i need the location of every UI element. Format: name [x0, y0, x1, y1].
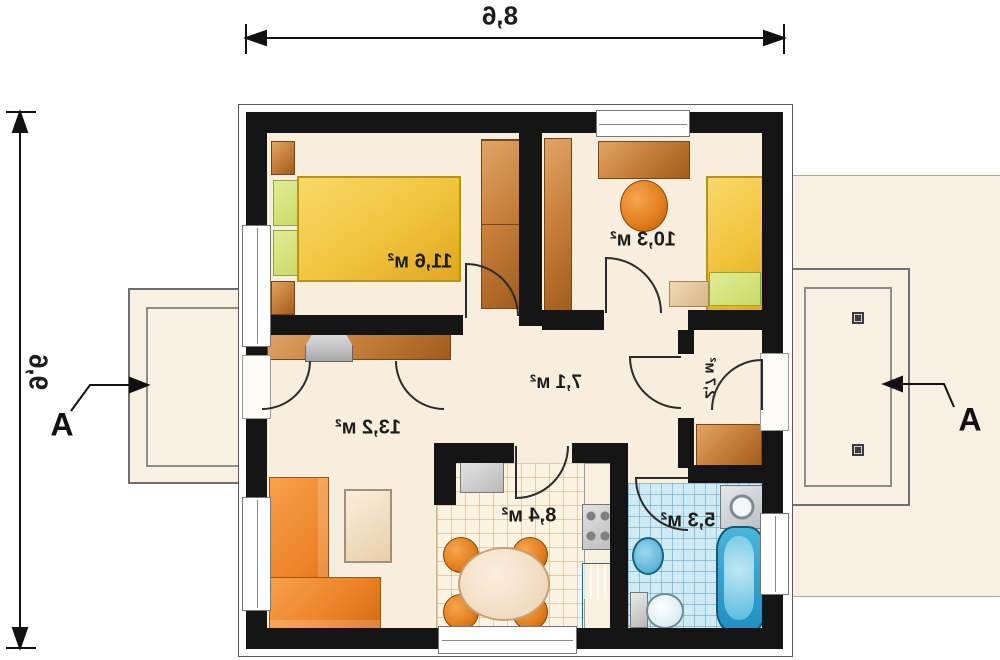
wall-bedroom-second-south-b	[688, 310, 762, 330]
column-post	[852, 312, 864, 324]
room-area-hall: 7,1 м²	[530, 372, 582, 394]
room-area-vestibule: 2,7 м²	[702, 357, 719, 398]
window	[596, 110, 690, 137]
wall-bathroom-north	[688, 465, 762, 483]
column-post	[852, 444, 864, 456]
window	[242, 225, 271, 347]
window	[760, 513, 789, 595]
section-letter-left: A	[50, 407, 73, 444]
wall-kitchen-north-b	[572, 443, 610, 463]
wall-vestibule-west-a	[678, 330, 694, 354]
wall-living-kitchen-stub	[434, 443, 456, 505]
room-area-bedroom-second: 10,3 м²	[610, 229, 676, 252]
wardrobe	[481, 139, 521, 309]
coffee-table	[344, 489, 392, 563]
wall-vestibule-west-b	[678, 418, 694, 468]
washing-machine	[720, 485, 764, 529]
cabinet	[544, 138, 572, 314]
office-chair	[620, 180, 668, 232]
door-opening-left-porch	[242, 355, 271, 419]
dining-table	[458, 547, 550, 621]
wall-bedroom-second-south-a	[542, 310, 604, 330]
room-area-bedroom-main: 11,6 м²	[388, 251, 453, 274]
porch-right-inner	[804, 287, 892, 487]
room-area-kitchen: 8,4 м²	[502, 505, 557, 528]
toilet-bowl	[646, 593, 684, 629]
nightstand	[669, 281, 709, 307]
door-opening-entrance	[760, 353, 789, 431]
corner-sofa	[269, 577, 381, 631]
bathtub-inner	[724, 536, 754, 620]
wall-kitchen-bath-divider	[610, 443, 628, 649]
dimension-width-label: 8,6	[482, 1, 518, 32]
window	[438, 626, 577, 654]
wall-outer-top	[246, 112, 783, 133]
bathroom-sink	[632, 537, 664, 575]
shoe-cabinet	[696, 424, 762, 468]
dimension-height-label: 9,6	[23, 354, 54, 390]
nightstand	[271, 281, 295, 315]
wall-bedroom-divider	[519, 133, 542, 326]
window	[242, 497, 271, 611]
desk	[598, 141, 690, 179]
section-letter-right: A	[958, 402, 981, 439]
room-area-bathroom: 5,3 м²	[661, 510, 716, 533]
nightstand	[271, 141, 295, 175]
floor-plan: 8,6 9,6 11,6 м² 10,3 м² 7,1 м² 13,2 м² 8…	[0, 0, 1000, 660]
pillow	[709, 272, 761, 306]
room-area-living: 13,2 м²	[335, 417, 401, 440]
wall-bedroom-main-south	[267, 315, 463, 335]
